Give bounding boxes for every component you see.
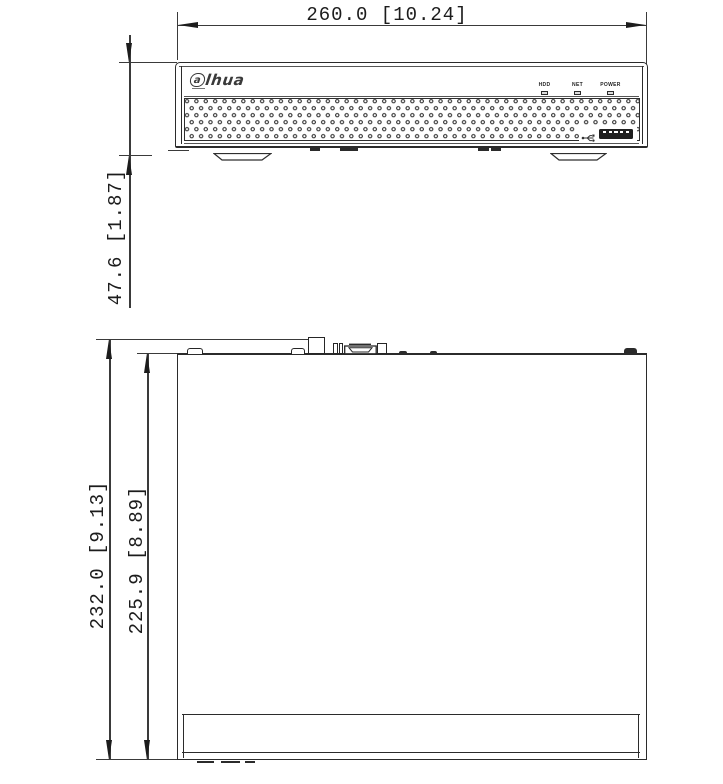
top-view-front-strip-line-upper — [182, 714, 640, 715]
net-led-indicator — [574, 91, 581, 95]
net-led-column: NET — [561, 82, 594, 95]
front-top-seam-line — [179, 66, 644, 67]
height-arrowhead-top — [126, 43, 132, 63]
width-arrowhead-left — [178, 22, 198, 28]
usb-icon — [581, 130, 596, 148]
depth-outer-dimension-line — [109, 339, 110, 760]
depth-outer-arrowhead-top — [106, 339, 112, 359]
usb-port — [599, 129, 633, 140]
front-right-wall-line — [642, 66, 643, 144]
usb-port-pin — [626, 131, 629, 133]
dahua-logo: a lhua — [189, 71, 246, 89]
dahua-logo-circle: a — [189, 73, 206, 88]
hdd-led-indicator — [541, 91, 548, 95]
front-foot-left — [213, 148, 272, 166]
top-view-foot-dash — [221, 761, 240, 763]
power-led-column: POWER — [594, 82, 627, 95]
front-view-chassis: a lhua HDD NET POWER — [175, 62, 648, 148]
power-connector — [308, 337, 325, 354]
top-view-foot-dash — [197, 761, 214, 763]
hdd-led-label: HDD — [539, 82, 551, 88]
front-foot-pad — [340, 148, 358, 151]
top-view-strip-left-wall — [183, 714, 184, 758]
vga-screw-post-left-2 — [339, 343, 344, 354]
usb-port-pin — [609, 131, 612, 133]
rear-small-nub — [399, 351, 407, 354]
status-led-block: HDD NET POWER — [528, 82, 627, 95]
vga-screw-post-right — [377, 343, 387, 354]
power-led-indicator — [607, 91, 614, 95]
nvr-dimension-drawing: 260.0 [10.24] 47.6 [1.87] a lhua HDD NET — [0, 0, 723, 784]
usb-port-pin — [620, 131, 623, 133]
net-led-label: NET — [572, 82, 583, 88]
rear-screw-bump-right — [624, 348, 637, 354]
front-foot-right — [550, 148, 607, 166]
usb-area — [579, 126, 637, 142]
vga-screw-post-left — [333, 343, 338, 354]
usb-port-pin — [603, 131, 606, 133]
depth-outer-arrowhead-bottom — [106, 740, 112, 760]
dahua-logo-text: lhua — [204, 71, 246, 89]
dahua-logo-subtext-bar — [192, 88, 205, 90]
depth-inner-extension-line-top — [137, 353, 177, 354]
usb-port-pin — [614, 131, 617, 133]
front-foot-pad — [478, 148, 489, 151]
depth-outer-dimension-label: 232.0 [9.13] — [87, 481, 109, 630]
front-left-wall-line — [181, 66, 182, 144]
front-foot-pad — [491, 148, 501, 151]
depth-inner-arrowhead-bottom — [144, 740, 150, 760]
width-arrowhead-right — [626, 22, 646, 28]
depth-outer-extension-line-top — [96, 339, 309, 340]
width-dimension-label: 260.0 [10.24] — [306, 4, 467, 26]
top-view-chassis — [177, 353, 647, 760]
power-led-label: POWER — [600, 82, 620, 88]
top-view-strip-right-wall — [638, 714, 639, 758]
hdd-led-column: HDD — [528, 82, 561, 95]
ventilation-grille — [184, 98, 640, 141]
rear-screw-bump-middle — [291, 348, 305, 354]
width-extension-line-right — [646, 12, 647, 67]
front-foot-pad — [310, 148, 320, 151]
rear-screw-bump-left — [187, 348, 203, 354]
depth-inner-arrowhead-top — [144, 353, 150, 373]
vga-connector — [344, 342, 377, 360]
rear-small-nub — [430, 351, 437, 354]
grille-top-seam-line — [184, 96, 639, 97]
grille-bottom-seam-line — [184, 143, 639, 144]
width-dimension-line — [178, 25, 646, 26]
width-extension-line-left — [177, 12, 178, 60]
height-extension-line-bottom — [119, 155, 152, 156]
top-view-front-strip-line-lower — [182, 752, 640, 753]
height-extension-line-top — [119, 62, 177, 63]
chassis-bottom-lip-line — [168, 150, 189, 151]
top-view-foot-dash — [245, 761, 255, 763]
depth-inner-dimension-label: 225.9 [8.89] — [126, 486, 148, 635]
height-dimension-label: 47.6 [1.87] — [105, 169, 127, 305]
